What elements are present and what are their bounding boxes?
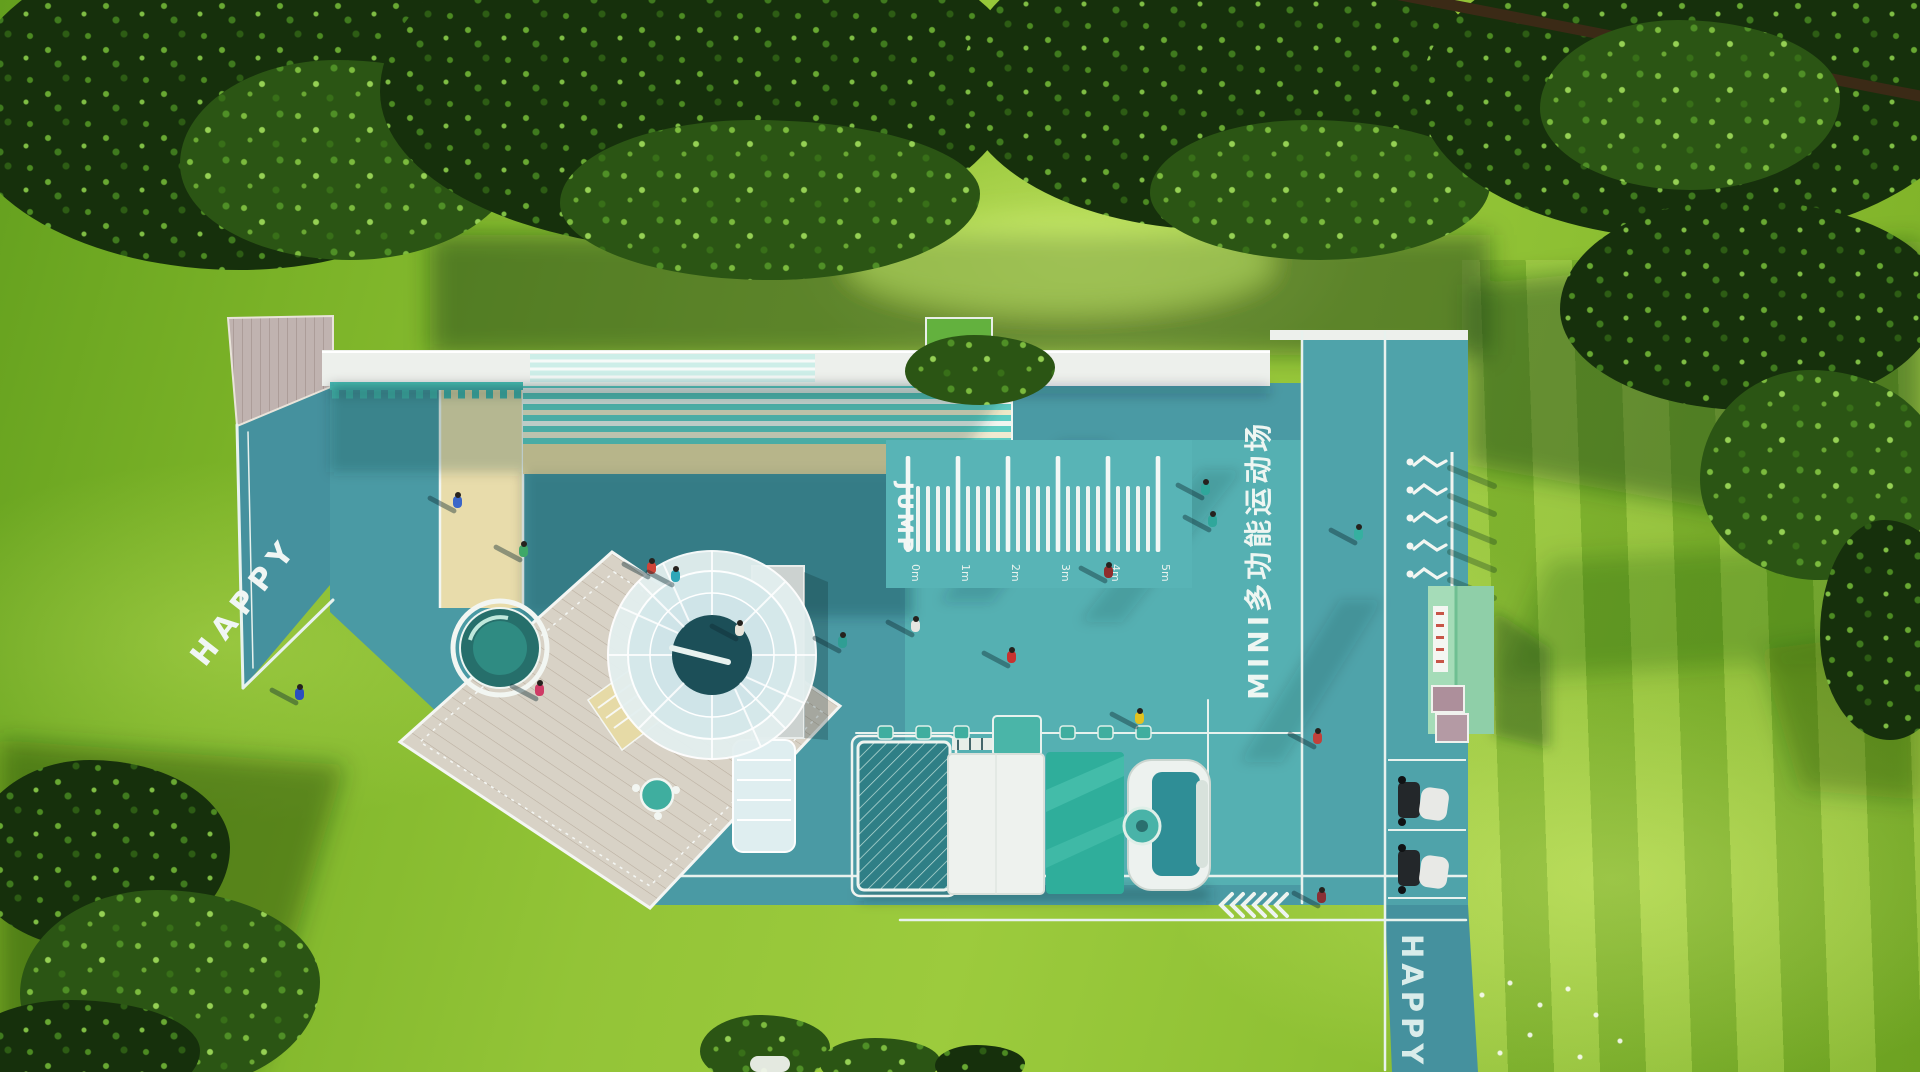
person-figure: [1134, 708, 1146, 724]
train-cab: [993, 716, 1041, 756]
ruler-label: 0m: [909, 564, 922, 582]
person-figure: [294, 684, 306, 700]
person-figure: [910, 616, 922, 632]
wildflower-patch: [1470, 975, 1660, 1070]
ruler-label: 3m: [1059, 564, 1072, 582]
person-figure: [1316, 887, 1328, 903]
aerial-playground-render: JUMP 0m1m2m3m4m5m HAPPY MINI多功能运动场 HAPPY: [0, 0, 1920, 1072]
person-figure: [1103, 562, 1115, 578]
watermark-partial: [750, 1056, 790, 1072]
slide-exit-chute: [733, 740, 795, 852]
trampoline-ring: [453, 601, 547, 695]
person-figure: [1353, 524, 1365, 540]
jump-label: JUMP: [893, 480, 917, 555]
jump-ruler: JUMP 0m1m2m3m4m5m: [886, 440, 1192, 588]
ruler-label: 1m: [959, 564, 972, 582]
ruler-label: 2m: [1009, 564, 1022, 582]
train-cage-car: [858, 742, 950, 890]
ruler-label: 5m: [1159, 564, 1172, 582]
train-locomotive: [1124, 760, 1210, 890]
person-figure: [1200, 479, 1212, 495]
person-figure: [670, 566, 682, 582]
person-figure: [1207, 511, 1219, 527]
person-figure: [734, 620, 746, 636]
person-figure: [837, 632, 849, 648]
person-figure: [518, 541, 530, 557]
person-figure: [452, 492, 464, 508]
court-title-text: MINI多功能运动场: [1242, 420, 1275, 700]
person-figure: [1006, 647, 1018, 663]
happy-text-right: HAPPY: [1395, 934, 1429, 1069]
person-figure: [1312, 728, 1324, 744]
person-figure: [534, 680, 546, 696]
kiosk-booth: [1432, 686, 1464, 712]
kiosk-booth: [1436, 714, 1468, 742]
